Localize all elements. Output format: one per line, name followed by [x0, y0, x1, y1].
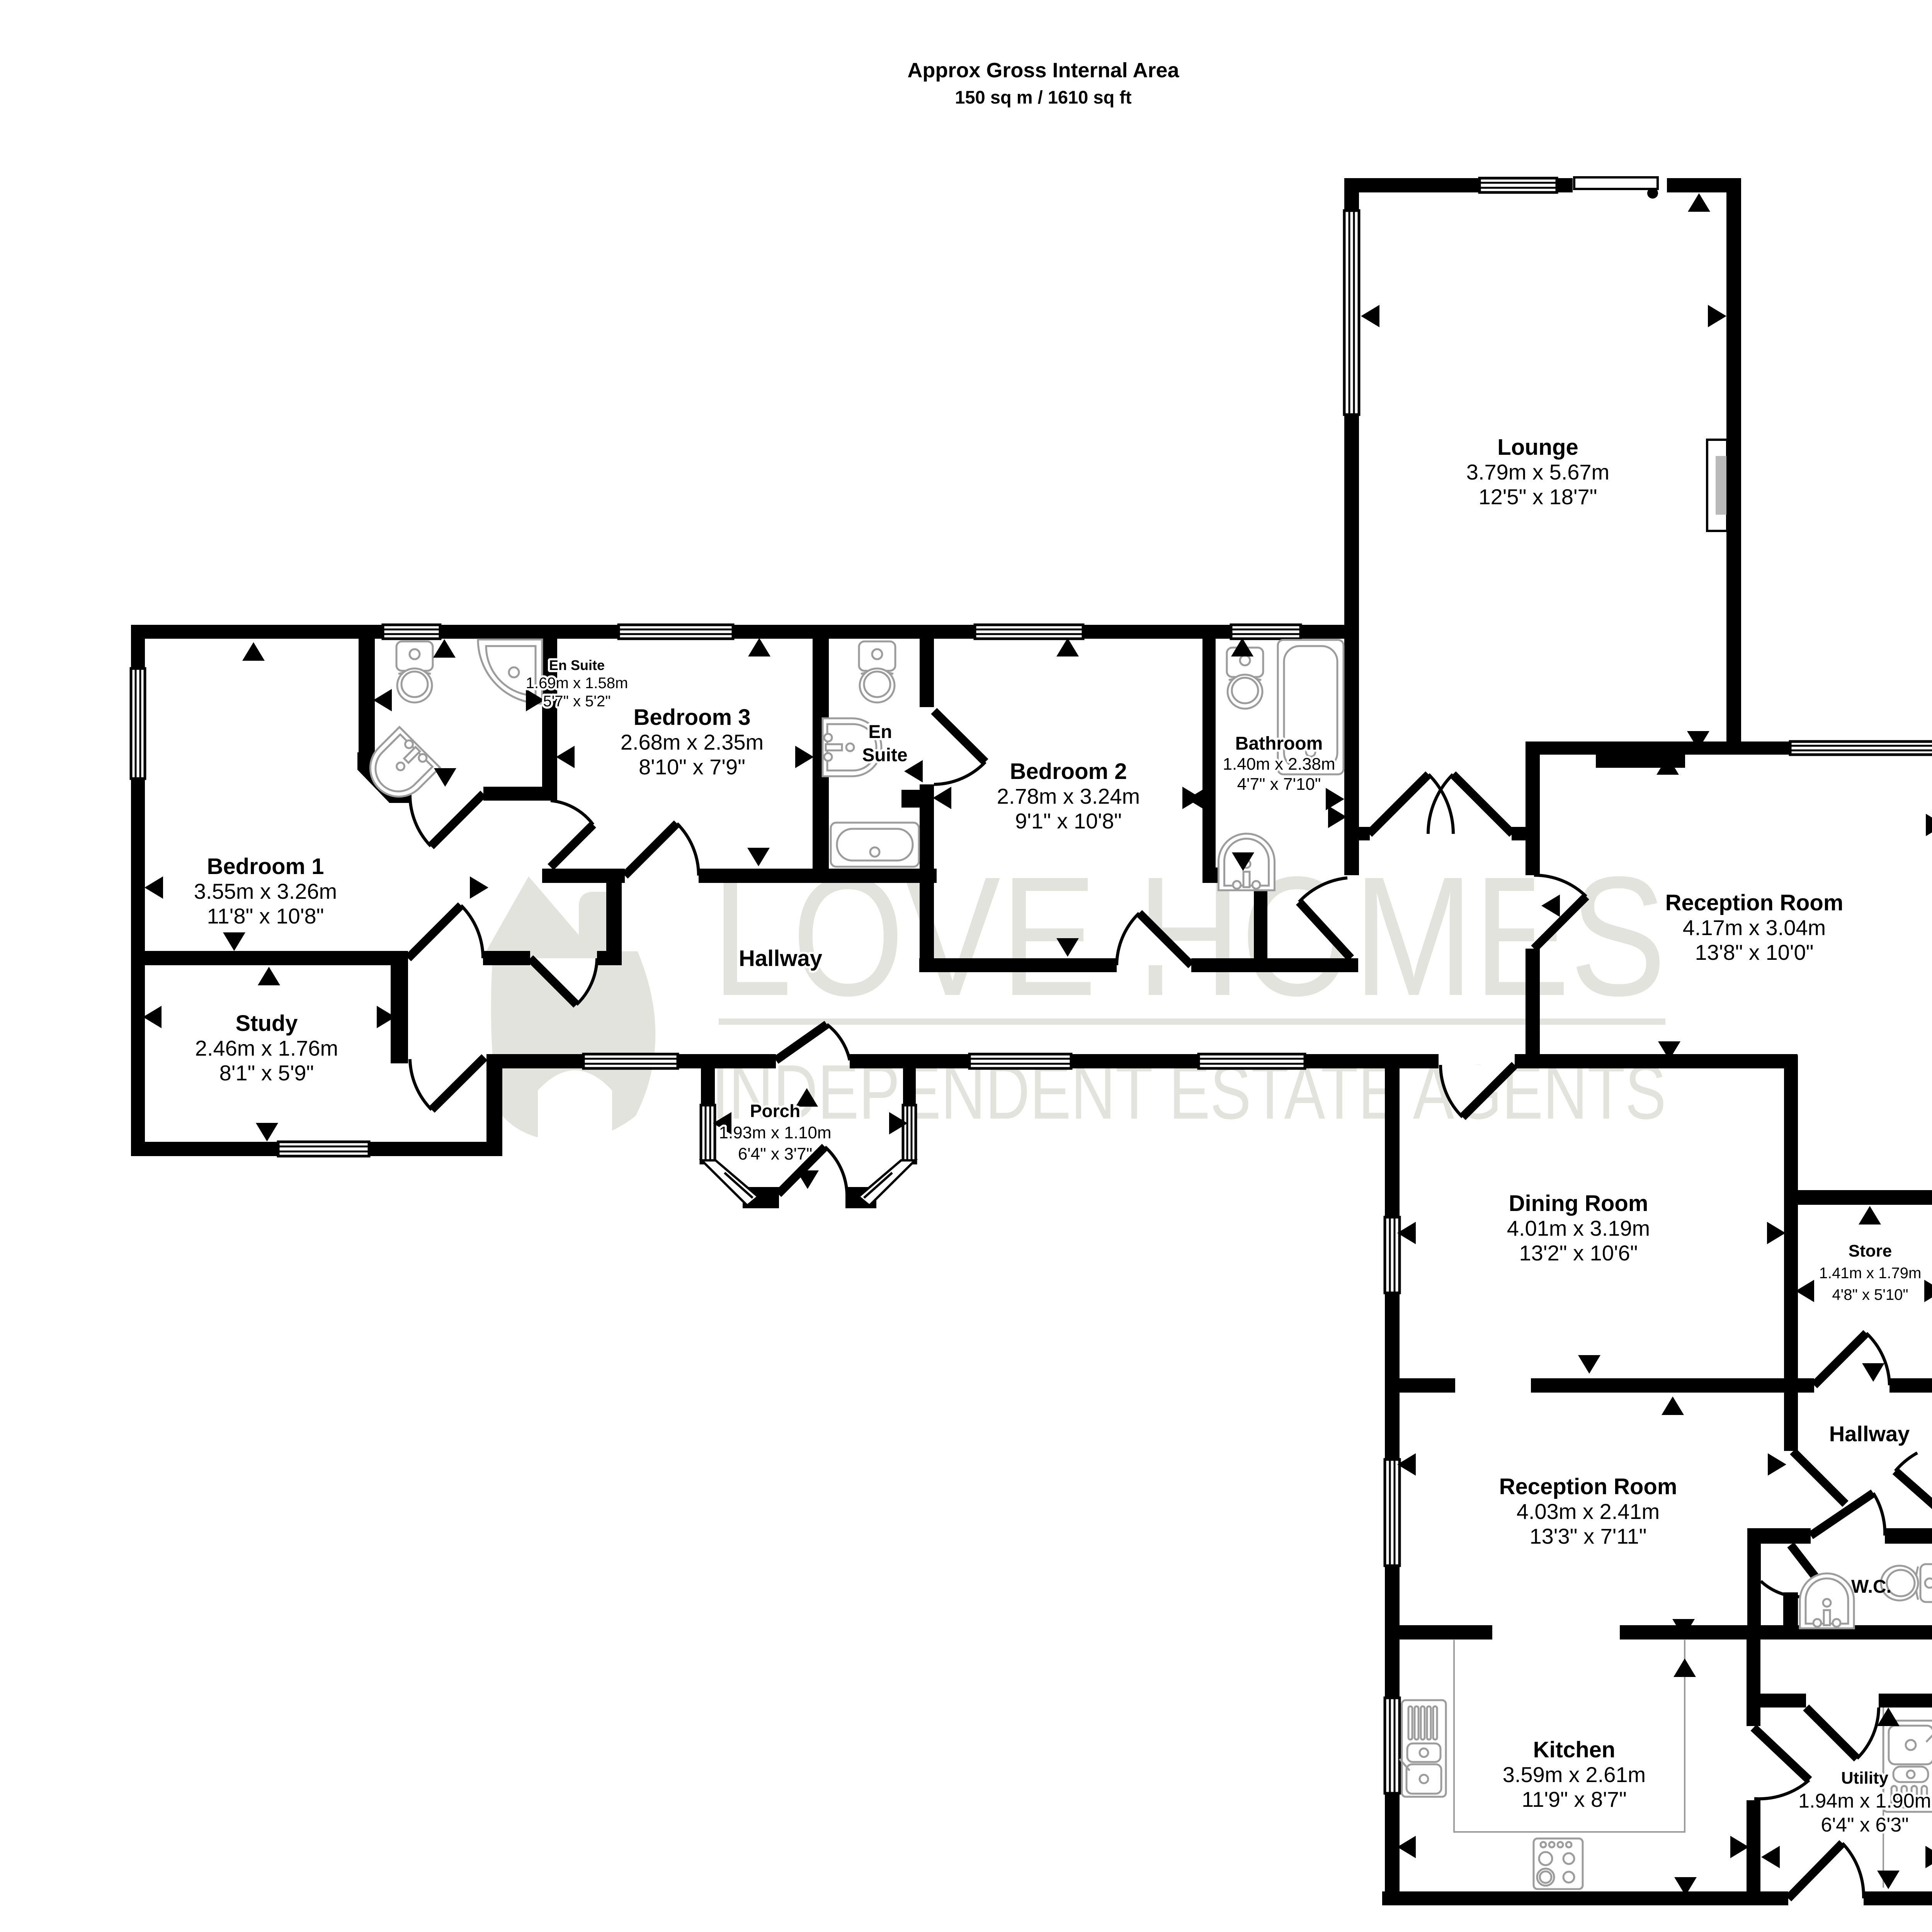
- svg-text:Reception Room: Reception Room: [1665, 890, 1844, 915]
- svg-text:1.94m x 1.90m: 1.94m x 1.90m: [1798, 1790, 1931, 1812]
- svg-text:2.46m x 1.76m: 2.46m x 1.76m: [195, 1036, 338, 1060]
- svg-text:Approx Gross Internal Area: Approx Gross Internal Area: [907, 59, 1179, 82]
- svg-text:8'10" x 7'9": 8'10" x 7'9": [639, 755, 745, 779]
- svg-text:150 sq m / 1610 sq ft: 150 sq m / 1610 sq ft: [955, 87, 1132, 107]
- svg-text:Utility: Utility: [1841, 1769, 1889, 1787]
- svg-text:Study: Study: [235, 1011, 298, 1036]
- svg-text:5'7" x 5'2": 5'7" x 5'2": [543, 693, 611, 710]
- svg-text:Dining Room: Dining Room: [1509, 1191, 1648, 1216]
- svg-text:4.17m x 3.04m: 4.17m x 3.04m: [1683, 915, 1826, 940]
- svg-text:Porch: Porch: [750, 1101, 800, 1121]
- svg-text:4.03m x 2.41m: 4.03m x 2.41m: [1517, 1499, 1660, 1524]
- svg-text:Bedroom 3: Bedroom 3: [634, 705, 751, 730]
- svg-text:Kitchen: Kitchen: [1533, 1737, 1616, 1762]
- svg-text:En: En: [868, 722, 892, 742]
- svg-text:Suite: Suite: [862, 745, 907, 765]
- svg-text:Lounge: Lounge: [1497, 435, 1578, 460]
- svg-text:6'4" x 3'7": 6'4" x 3'7": [738, 1145, 812, 1163]
- svg-text:Store: Store: [1849, 1242, 1892, 1260]
- svg-text:13'8" x 10'0": 13'8" x 10'0": [1695, 940, 1813, 964]
- svg-text:9'1" x 10'8": 9'1" x 10'8": [1015, 809, 1122, 833]
- svg-text:Bathroom: Bathroom: [1235, 733, 1323, 754]
- svg-text:1.40m x 2.38m: 1.40m x 2.38m: [1223, 755, 1335, 774]
- svg-text:3.55m x 3.26m: 3.55m x 3.26m: [194, 879, 337, 903]
- svg-text:4'7" x 7'10": 4'7" x 7'10": [1237, 775, 1321, 794]
- svg-text:Bedroom 1: Bedroom 1: [207, 854, 324, 879]
- svg-text:12'5" x 18'7": 12'5" x 18'7": [1478, 485, 1597, 509]
- svg-text:13'2" x 10'6": 13'2" x 10'6": [1519, 1241, 1638, 1265]
- svg-text:11'8" x 10'8": 11'8" x 10'8": [207, 904, 324, 928]
- svg-text:13'3" x 7'11": 13'3" x 7'11": [1530, 1524, 1647, 1548]
- svg-text:1.93m x 1.10m: 1.93m x 1.10m: [719, 1123, 831, 1142]
- svg-text:8'1" x 5'9": 8'1" x 5'9": [219, 1061, 314, 1085]
- svg-text:W.C.: W.C.: [1851, 1577, 1891, 1597]
- svg-text:Reception Room: Reception Room: [1499, 1474, 1677, 1499]
- svg-text:11'9" x 8'7": 11'9" x 8'7": [1522, 1787, 1627, 1811]
- svg-text:Hallway: Hallway: [1829, 1422, 1910, 1446]
- svg-text:6'4" x 6'3": 6'4" x 6'3": [1821, 1814, 1908, 1836]
- svg-text:1.69m x 1.58m: 1.69m x 1.58m: [526, 675, 628, 692]
- svg-text:En Suite: En Suite: [549, 657, 605, 673]
- svg-text:2.78m x 3.24m: 2.78m x 3.24m: [997, 784, 1140, 808]
- svg-text:3.79m x 5.67m: 3.79m x 5.67m: [1466, 460, 1609, 484]
- svg-text:4.01m x 3.19m: 4.01m x 3.19m: [1507, 1216, 1650, 1240]
- svg-text:Bedroom 2: Bedroom 2: [1010, 759, 1127, 784]
- svg-text:2.68m x 2.35m: 2.68m x 2.35m: [621, 730, 764, 754]
- svg-text:4'8" x 5'10": 4'8" x 5'10": [1832, 1286, 1908, 1303]
- svg-text:Hallway: Hallway: [739, 946, 822, 971]
- svg-text:1.41m x 1.79m: 1.41m x 1.79m: [1819, 1265, 1922, 1282]
- svg-text:3.59m x 2.61m: 3.59m x 2.61m: [1503, 1762, 1646, 1787]
